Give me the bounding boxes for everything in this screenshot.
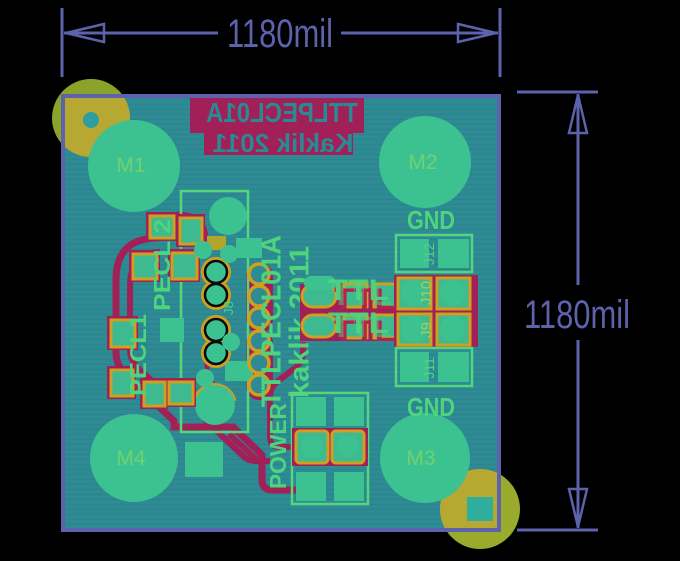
svg-text:PECL1: PECL1 bbox=[125, 314, 151, 396]
svg-text:1180mil: 1180mil bbox=[227, 12, 333, 56]
svg-text:M4: M4 bbox=[116, 447, 145, 470]
svg-text:J11: J11 bbox=[421, 357, 437, 379]
svg-text:J9: J9 bbox=[418, 322, 435, 338]
svg-text:PECL 2: PECL 2 bbox=[149, 219, 175, 311]
svg-text:Kaklik 2011: Kaklik 2011 bbox=[213, 128, 354, 158]
svg-text:TTLPECL01A: TTLPECL01A bbox=[206, 97, 358, 128]
svg-text:M1: M1 bbox=[116, 154, 145, 177]
svg-text:J10: J10 bbox=[418, 281, 435, 305]
svg-text:POWER: POWER bbox=[265, 403, 291, 489]
svg-text:M3: M3 bbox=[406, 447, 435, 470]
svg-text:M2: M2 bbox=[408, 151, 437, 174]
svg-text:J12: J12 bbox=[421, 243, 437, 266]
svg-text:GND: GND bbox=[407, 392, 455, 422]
svg-text:J8: J8 bbox=[221, 301, 236, 315]
svg-text:1180mil: 1180mil bbox=[524, 293, 630, 337]
svg-text:GND: GND bbox=[407, 205, 455, 235]
svg-text:TTLPECL01A: TTLPECL01A bbox=[256, 235, 287, 407]
